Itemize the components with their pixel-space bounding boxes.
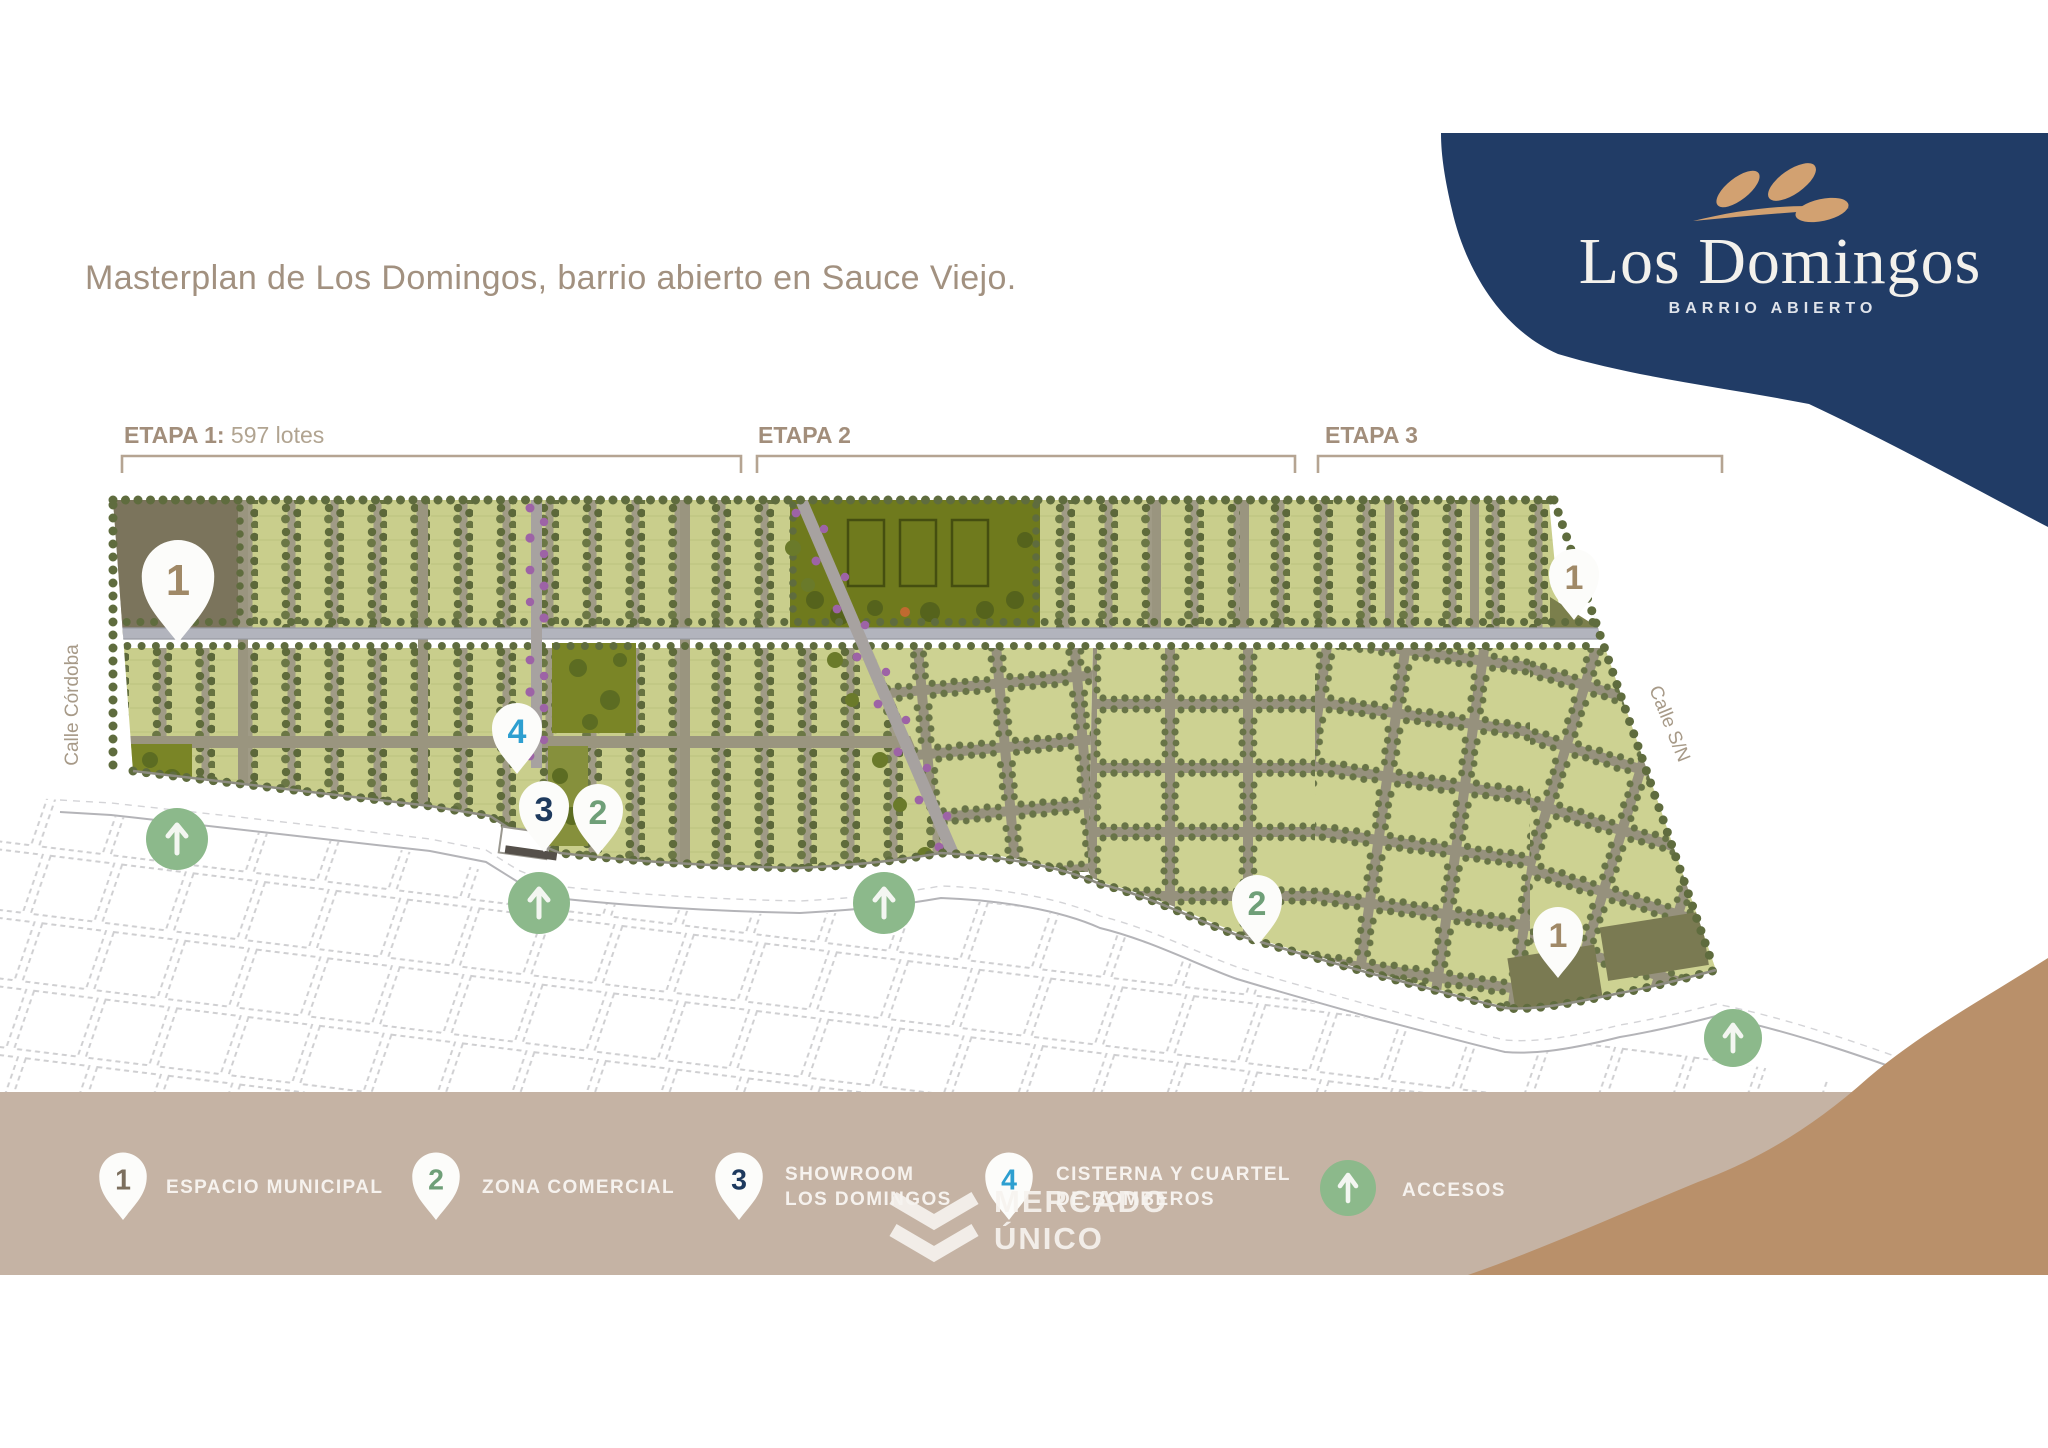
svg-text:ESPACIO MUNICIPAL: ESPACIO MUNICIPAL (166, 1177, 383, 1198)
svg-text:ZONA COMERCIAL: ZONA COMERCIAL (482, 1177, 675, 1198)
svg-text:LOS DOMINGOS: LOS DOMINGOS (785, 1189, 952, 1210)
svg-text:BARRIO ABIERTO: BARRIO ABIERTO (1669, 300, 1878, 317)
svg-text:ETAPA 2: ETAPA 2 (758, 422, 851, 448)
svg-text:ÚNICO: ÚNICO (994, 1220, 1104, 1256)
svg-text:3: 3 (535, 791, 554, 829)
svg-text:2: 2 (428, 1165, 444, 1197)
svg-text:2: 2 (1248, 885, 1267, 923)
svg-text:1: 1 (166, 557, 190, 605)
svg-text:Masterplan de Los Domingos, ba: Masterplan de Los Domingos, barrio abier… (85, 259, 1017, 297)
svg-text:Los Domingos: Los Domingos (1579, 225, 1982, 298)
svg-text:1: 1 (1549, 917, 1568, 955)
svg-text:3: 3 (731, 1165, 747, 1197)
svg-text:4: 4 (508, 713, 527, 751)
svg-text:Calle Córdoba: Calle Córdoba (62, 644, 83, 766)
svg-text:ACCESOS: ACCESOS (1402, 1180, 1506, 1201)
svg-text:2: 2 (589, 794, 608, 832)
svg-text:SHOWROOM: SHOWROOM (785, 1164, 914, 1185)
svg-text:ETAPA 1: 597 lotes: ETAPA 1: 597 lotes (124, 422, 324, 448)
svg-text:ETAPA 3: ETAPA 3 (1325, 422, 1418, 448)
svg-text:1: 1 (115, 1165, 131, 1197)
svg-text:MERCADO: MERCADO (994, 1184, 1168, 1219)
svg-text:CISTERNA Y CUARTEL: CISTERNA Y CUARTEL (1056, 1164, 1291, 1185)
svg-text:1: 1 (1565, 559, 1584, 597)
